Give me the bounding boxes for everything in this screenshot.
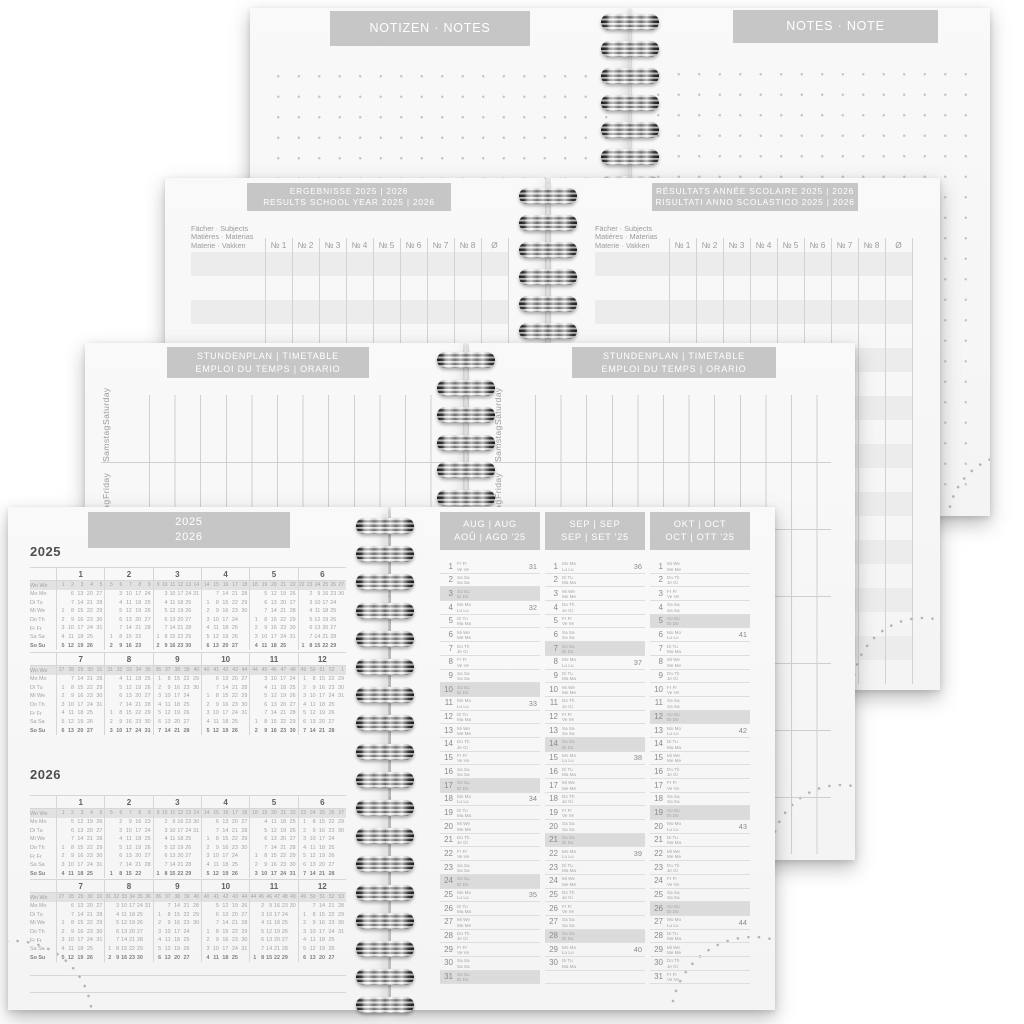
day-number: 17 (129, 902, 137, 911)
day-number: 4 (202, 624, 211, 633)
day-number: 3 (105, 727, 114, 736)
day-row: 2Di TuMa Ma (545, 574, 645, 588)
day-number: 28 (143, 861, 152, 870)
weekday-abbr-line: Lu Lu (667, 923, 681, 928)
weekday-row-label: Mi We (30, 835, 56, 844)
week-number: 50 (308, 893, 317, 902)
spiral-coil (356, 856, 414, 872)
day-number: 7 (115, 624, 124, 633)
day-row: 7Di TuMa Ma (650, 642, 750, 656)
month-day-cells: 29162330 (249, 902, 297, 911)
month-day-cells: 5121926 (298, 709, 346, 718)
month-day-cells: 5121926 (153, 844, 201, 853)
week-number: 3 (76, 581, 85, 590)
month-day-cells: 7142128 (104, 861, 152, 870)
weekday-abbr: Mo MoLu Lu (562, 849, 576, 860)
spiral-coil (356, 941, 414, 957)
day-number: 4 (162, 835, 170, 844)
day-number: 19 (76, 954, 85, 963)
day-number: 7 (260, 607, 269, 616)
day-number: 23 (545, 863, 558, 872)
month-number-row: 123456 (30, 796, 346, 809)
day-number: 9 (260, 727, 269, 736)
week-number: 34 (129, 893, 137, 902)
weekday-abbr: Fr FrVe Ve (457, 849, 469, 860)
month-day-cells: 18152229 (249, 954, 297, 963)
day-number: 6 (115, 692, 124, 701)
day-number: 10 (440, 685, 453, 694)
day-number: 1 (299, 911, 308, 920)
week-number: 22 (299, 581, 307, 590)
day-number: 20 (85, 590, 94, 599)
day-number: 11 (308, 701, 317, 710)
day-number: 13 (221, 818, 230, 827)
month-day-cells: 6132027 (104, 852, 152, 861)
week-number: 31 (105, 893, 113, 902)
month-day-cells: 7142128 (249, 607, 297, 616)
day-number: 30 (650, 958, 663, 967)
day-number: 23 (129, 954, 137, 963)
day-number: 26 (95, 818, 104, 827)
day-row: 28So SuDi Do (545, 930, 645, 944)
day-number: 26 (143, 607, 152, 616)
day-number: 13 (76, 590, 85, 599)
day-number: 13 (269, 599, 278, 608)
weekday-abbr-line: Lu Lu (457, 895, 471, 900)
day-number: 9 (545, 671, 558, 680)
day-number: 11 (269, 818, 278, 827)
day-number: 14 (221, 919, 230, 928)
day-number: 2 (650, 575, 663, 584)
month-week-cells: 2324252627 (298, 809, 346, 818)
month-day-cells: 4111825 (298, 607, 346, 616)
day-row: 17Mi WeMe Me (545, 779, 645, 793)
day-number: 27 (327, 718, 336, 727)
day-row: 2Do ThJe Gi (650, 574, 750, 588)
month-number: 9 (153, 880, 201, 892)
day-number: 8 (66, 684, 75, 693)
day-number: 14 (269, 844, 278, 853)
weekday-abbr: Do ThJe Gi (667, 671, 679, 682)
weekday-row: Mi We71421284111825411182518152229613202… (30, 835, 346, 844)
weekday-abbr-line: Di Do (667, 909, 680, 914)
day-number: 14 (169, 861, 177, 870)
month-number: 9 (153, 653, 201, 665)
month-day-cells: 7142128 (298, 633, 346, 642)
day-number (338, 599, 346, 608)
week-number: 36 (145, 893, 153, 902)
day-number: 25 (230, 954, 239, 963)
day-number: 25 (327, 936, 336, 945)
day-number (337, 718, 346, 727)
day-number: 27 (182, 954, 191, 963)
weekday-abbr-line: Je Gi (667, 868, 679, 873)
day-number: 16 (318, 827, 327, 836)
month-day-cells: 18152229 (56, 919, 104, 928)
day-row: 14Do ThJe Gi (440, 738, 540, 752)
month-day-cells: 4111825 (104, 835, 152, 844)
day-number: 27 (240, 911, 249, 920)
day-number: 20 (230, 675, 239, 684)
day-number: 5 (440, 616, 453, 625)
day-number: 23 (279, 624, 288, 633)
day-number: 21 (134, 701, 143, 710)
day-number (95, 642, 104, 651)
weekday-abbr-line: Sa Sa (562, 731, 575, 736)
day-number: 14 (221, 827, 230, 836)
day-number: 13 (124, 616, 133, 625)
day-number (154, 616, 162, 625)
year-calendar-2026-half2: 789101112Wo We27282930313132333435363637… (30, 879, 346, 962)
week-number: 28 (66, 666, 75, 675)
weekday-row-label: Sa Sa (30, 945, 56, 954)
month-number: 6 (298, 796, 346, 808)
day-number: 25 (288, 684, 297, 693)
day-number (337, 844, 346, 853)
week-number: 29 (76, 893, 85, 902)
weekday-abbr-line: Do Th (667, 958, 679, 963)
day-number: 6 (258, 936, 266, 945)
day-number: 5 (260, 590, 269, 599)
day-number: 1 (299, 675, 308, 684)
weekday-row-label: Di Tu (30, 911, 56, 920)
day-number: 3 (57, 936, 66, 945)
weekday-abbr: Fr FrVe Ve (457, 561, 469, 572)
day-number (154, 599, 162, 608)
day-number: 4 (57, 945, 66, 954)
day-row: 1Fr FrVe Ve31 (440, 560, 540, 574)
month-day-cells: 7142128 (153, 624, 201, 633)
day-number: 12 (308, 852, 317, 861)
month-day-cells: 29162330 (56, 852, 104, 861)
day-number: 24 (440, 876, 453, 885)
day-number: 28 (440, 931, 453, 940)
week-number: 35 (529, 890, 537, 899)
month-day-cells: 5121926 (249, 692, 297, 701)
day-number: 25 (185, 835, 193, 844)
day-number: 28 (288, 709, 297, 718)
day-number: 12 (124, 844, 133, 853)
day-number: 28 (95, 675, 104, 684)
day-number: 6 (260, 701, 269, 710)
day-number: 2 (250, 861, 259, 870)
day-number (57, 902, 66, 911)
weekday-abbr-line: Me Me (562, 594, 576, 599)
month-day-cells: 6132027 (201, 911, 249, 920)
week-number: 50 (308, 666, 317, 675)
day-number (337, 936, 346, 945)
weekday-abbr-line: Sa Sa (457, 772, 470, 777)
day-number: 22 (85, 607, 94, 616)
day-number: 14 (221, 684, 230, 693)
day-number: 8 (260, 852, 269, 861)
week-number: 49 (299, 893, 308, 902)
day-number (250, 827, 259, 836)
day-number: 8 (308, 675, 317, 684)
day-row: 4Mo MoLu Lu32 (440, 601, 540, 615)
day-number (337, 852, 346, 861)
day-number: 19 (322, 616, 330, 625)
weekday-abbr: Do ThJe Gi (667, 958, 679, 969)
day-number (338, 642, 346, 651)
day-number: 12 (269, 590, 278, 599)
week-number: 41 (211, 893, 220, 902)
day-number: 17 (76, 861, 85, 870)
day-number: 5 (66, 818, 75, 827)
day-number: 25 (330, 607, 338, 616)
day-number: 27 (327, 861, 336, 870)
day-number: 7 (258, 945, 266, 954)
day-row: 23Di TuMa Ma (545, 861, 645, 875)
day-number: 6 (162, 616, 170, 625)
day-number (105, 852, 114, 861)
week-number: 16 (221, 809, 230, 818)
day-number (95, 727, 104, 736)
weekday-row-label: Mi We (30, 692, 56, 701)
day-number: 12 (66, 718, 75, 727)
day-number: 26 (240, 902, 249, 911)
month-day-cells: 310172431 (56, 701, 104, 710)
spiral-coil (356, 631, 414, 647)
day-number: 26 (137, 919, 145, 928)
month-day-cells: 4111825 (249, 919, 297, 928)
day-number: 29 (95, 684, 104, 693)
day-number (299, 607, 307, 616)
day-number (240, 624, 249, 633)
day-number: 9 (115, 642, 124, 651)
day-number (299, 624, 307, 633)
weekday-row: So Su51219262916232916233061320274111825… (30, 642, 346, 651)
weekday-abbr: Sa SaSa Sa (667, 698, 680, 709)
week-number: 24 (308, 809, 317, 818)
month-day-cells: 6132027 (104, 692, 152, 701)
week-number: 41 (211, 666, 220, 675)
weekday-row: So Su61320273101724317142128512192629162… (30, 727, 346, 736)
week-number: 15 (211, 581, 220, 590)
day-number: 9 (440, 671, 453, 680)
day-number: 4 (260, 684, 269, 693)
weekday-abbr: Sa SaSa Sa (457, 671, 470, 682)
weekday-abbr-line: Me Me (562, 786, 576, 791)
day-number: 2 (57, 928, 66, 937)
weekday-row-label: So Su (30, 870, 56, 879)
day-number: 11 (66, 709, 75, 718)
day-number (95, 718, 104, 727)
weekday-row-label: So Su (30, 642, 56, 651)
day-number (57, 675, 66, 684)
day-number: 1 (202, 692, 211, 701)
weekday-abbr-line: Di Do (667, 813, 680, 818)
month-day-cells: 6132027 (104, 616, 152, 625)
weekday-abbr-line: Sa Sa (667, 799, 680, 804)
week-number: 37 (163, 893, 172, 902)
day-number (202, 818, 211, 827)
day-number: 15 (169, 633, 177, 642)
month-number: 12 (298, 653, 346, 665)
month-day-cells: 18152229 (201, 599, 249, 608)
day-number: 26 (85, 642, 94, 651)
day-number: 4 (113, 911, 121, 920)
month-number-row: 123456 (30, 568, 346, 581)
day-row: 16Di TuMa Ma (545, 765, 645, 779)
day-number: 22 (230, 928, 239, 937)
day-number (193, 599, 201, 608)
day-number: 27 (85, 727, 94, 736)
day-number: 25 (182, 936, 191, 945)
weekday-abbr-line: Lu Lu (667, 635, 681, 640)
weekday-abbr: Sa SaSa Sa (667, 794, 680, 805)
day-row: 30Di TuMa Ma (545, 957, 645, 971)
weekday-abbr: So SuDi Do (457, 685, 470, 696)
weekday-abbr: Mi WeMe Me (667, 945, 681, 956)
day-number: 2 (57, 616, 66, 625)
month-day-cells: 7142128 (298, 870, 346, 879)
day-number: 13 (76, 902, 85, 911)
day-number: 8 (211, 599, 220, 608)
week-number: 40 (202, 666, 211, 675)
weekday-abbr: Di TuMa Ma (457, 904, 471, 915)
month-day-cells: 4111825 (201, 954, 249, 963)
weekday-abbr-line: Lu Lu (667, 827, 681, 832)
weekday-row-label: Fr Fr (30, 852, 56, 861)
weekday-abbr: So SuDi Do (562, 931, 575, 942)
day-number: 26 (545, 904, 558, 913)
weekday-abbr: So SuDi Do (562, 739, 575, 750)
week-number: 30 (85, 666, 94, 675)
day-number (337, 709, 346, 718)
day-number: 21 (279, 607, 288, 616)
day-number: 16 (545, 767, 558, 776)
day-number: 1 (440, 562, 453, 571)
day-number: 24 (327, 928, 336, 937)
month-day-cells: 29162330 (249, 727, 297, 736)
month-day-cells: 5121926 (104, 684, 152, 693)
day-number: 2 (299, 919, 308, 928)
day-number: 12 (440, 712, 453, 721)
day-number: 14 (76, 675, 85, 684)
weekday-abbr: Mi WeMe Me (562, 685, 576, 696)
month-day-cells: 18152229 (153, 911, 201, 920)
weekday-abbr: Fr FrVe Ve (562, 808, 574, 819)
day-number: 17 (177, 590, 185, 599)
week-number: 8 (134, 809, 143, 818)
day-row: 24So SuDi Do (440, 875, 540, 889)
day-number: 30 (143, 718, 152, 727)
day-number: 29 (192, 675, 201, 684)
day-number: 8 (260, 718, 269, 727)
weekday-abbr-line: So Su (562, 739, 575, 744)
week-number: 40 (634, 945, 642, 954)
month-day-cells: 6132027 (201, 642, 249, 651)
weekday-abbr-line: Sa Sa (457, 676, 470, 681)
day-number (250, 928, 258, 937)
month-day-cells: 4111825 (56, 870, 104, 879)
day-number: 25 (143, 835, 152, 844)
month-day-cells: 6132027 (298, 954, 346, 963)
day-number: 20 (318, 954, 327, 963)
day-number (338, 633, 346, 642)
month-day-cells: 18152229 (153, 675, 201, 684)
day-number: 24 (327, 692, 336, 701)
day-number: 12 (308, 709, 317, 718)
day-number: 8 (66, 919, 75, 928)
day-number (105, 919, 113, 928)
day-number: 3 (299, 835, 308, 844)
day-number: 12 (76, 818, 85, 827)
day-number: 20 (85, 827, 94, 836)
month-day-cells: 310172431 (104, 727, 152, 736)
day-number: 9 (113, 954, 121, 963)
weekday-abbr-line: Je Gi (562, 704, 574, 709)
weekday-abbr: Fr FrVe Ve (562, 904, 574, 915)
day-number: 23 (134, 718, 143, 727)
day-number: 22 (182, 911, 191, 920)
month-day-cells: 4111825 (298, 936, 346, 945)
day-number (105, 835, 114, 844)
day-number: 16 (76, 692, 85, 701)
weekday-row: Do Th18152229512192651219262916233071421… (30, 844, 346, 853)
day-number: 13 (269, 701, 278, 710)
day-row: 13Mi WeMe Me (440, 724, 540, 738)
day-number: 6 (260, 599, 269, 608)
month-week-cells: 313233343536 (104, 893, 152, 902)
day-number: 30 (337, 684, 346, 693)
day-number: 25 (279, 642, 288, 651)
weekday-abbr: Mi WeMe Me (562, 589, 576, 600)
day-number: 12 (545, 712, 558, 721)
day-number: 21 (129, 936, 137, 945)
month-day-cells: 3101724 (249, 675, 297, 684)
day-row: 31Fr FrVe Ve (650, 971, 750, 985)
month-day-cells: 3101724 (104, 590, 152, 599)
week-number: 25 (322, 581, 330, 590)
day-number: 1 (545, 562, 558, 571)
day-number: 17 (545, 781, 558, 790)
day-number: 4 (299, 701, 308, 710)
week-row-label: Wo We (30, 666, 56, 675)
day-number: 7 (211, 590, 220, 599)
day-number: 8 (260, 616, 269, 625)
day-number: 14 (163, 727, 172, 736)
day-number: 10 (269, 675, 278, 684)
day-number: 29 (282, 954, 290, 963)
week-number-row: Wo We12345567899101112131414151617181819… (30, 581, 346, 590)
day-number: 27 (330, 624, 338, 633)
day-number: 18 (440, 794, 453, 803)
weekday-abbr: Do ThJe Gi (562, 698, 574, 709)
day-number: 7 (260, 844, 269, 853)
day-row: 6Mo MoLu Lu41 (650, 628, 750, 642)
day-number: 15 (545, 753, 558, 762)
weekday-abbr-line: Ve Ve (457, 663, 469, 668)
day-number: 29 (337, 675, 346, 684)
day-number: 8 (162, 633, 170, 642)
day-number: 17 (650, 781, 663, 790)
weekday-abbr: Mi WeMe Me (667, 753, 681, 764)
day-number (95, 870, 104, 879)
weekday-abbr: Di TuMa Ma (562, 863, 576, 874)
week-number: 38 (173, 893, 182, 902)
month-day-cells: 4111825 (298, 844, 346, 853)
day-number: 19 (221, 727, 230, 736)
day-number: 17 (134, 827, 143, 836)
month-day-cells: 3101724 (249, 911, 297, 920)
day-number: 28 (337, 902, 346, 911)
day-number: 12 (650, 712, 663, 721)
day-row: 30Sa SaSa Sa (440, 957, 540, 971)
week-number: 27 (57, 666, 66, 675)
weekday-row-label: Di Tu (30, 684, 56, 693)
